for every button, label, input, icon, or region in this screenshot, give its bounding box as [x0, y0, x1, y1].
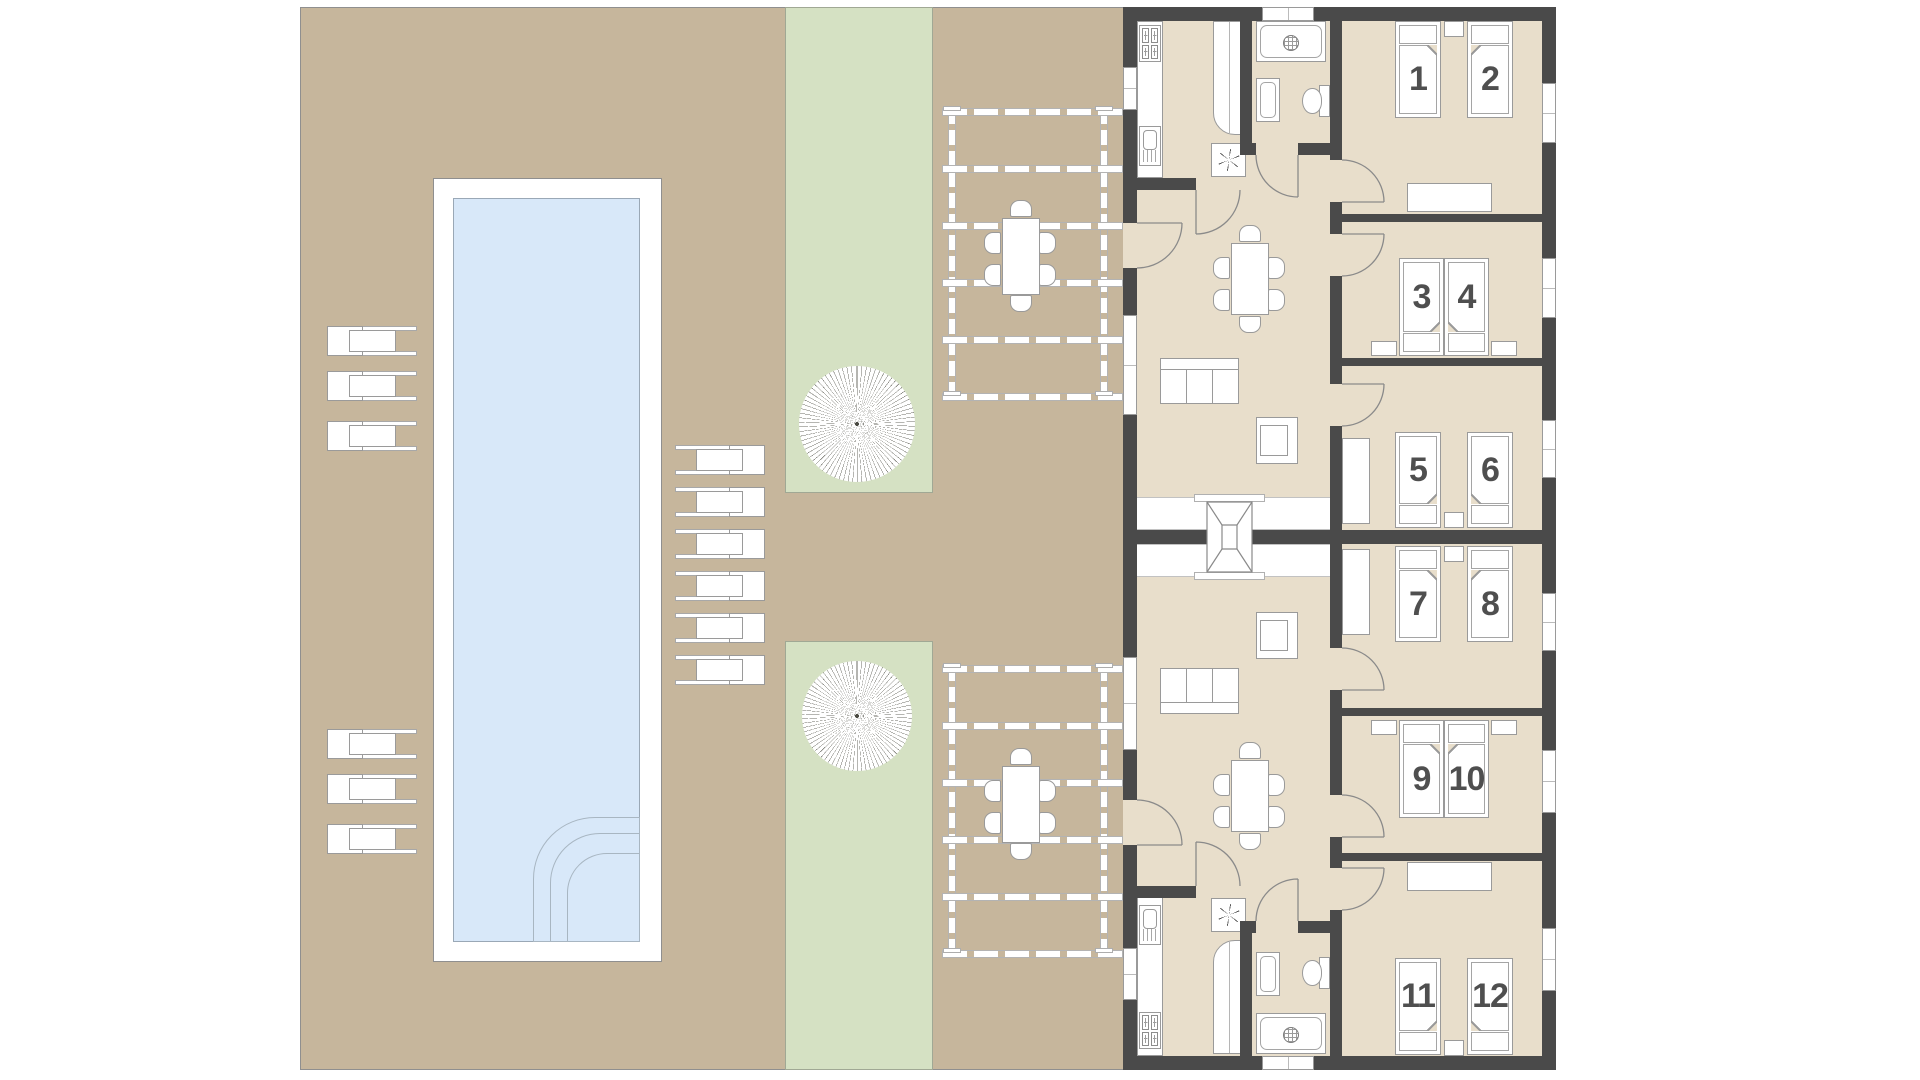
- sink-bowl: [1143, 909, 1157, 929]
- bed: 3: [1399, 258, 1444, 356]
- armchair: [1256, 612, 1298, 659]
- window: [1542, 593, 1556, 651]
- washbasin-inner: [1260, 82, 1276, 118]
- wardrobe: [1407, 183, 1492, 212]
- tree-icon: [799, 366, 915, 482]
- bed-pillow: [1399, 1032, 1437, 1051]
- pergola-cap: [1095, 948, 1113, 953]
- bed-pillow: [1471, 25, 1509, 44]
- outdoor-chair: [984, 232, 1001, 254]
- door-opening: [1123, 800, 1137, 845]
- stove-icon: [1139, 25, 1161, 62]
- outdoor-chair: [1010, 843, 1032, 860]
- window: [1123, 67, 1137, 110]
- armchair: [1256, 417, 1298, 464]
- wall-bedroom-divider: [1342, 708, 1542, 716]
- bed-number: 11: [1401, 977, 1435, 1016]
- bed: 5: [1395, 432, 1441, 528]
- outdoor-chair: [1039, 232, 1056, 254]
- lounger-seat: [696, 659, 743, 681]
- door-opening: [1123, 223, 1137, 268]
- blanket-fold: [1448, 744, 1461, 757]
- sun-lounger: [327, 421, 417, 451]
- outdoor-chair: [1010, 748, 1032, 765]
- lounger-seat: [696, 491, 743, 513]
- drain-icon: [1283, 1027, 1299, 1043]
- kitchen-sink: [1139, 126, 1161, 166]
- bathtub: [1256, 21, 1326, 62]
- sun-lounger: [675, 613, 765, 643]
- door-opening: [1330, 160, 1342, 202]
- washbasin: [1256, 952, 1280, 996]
- washbasin: [1256, 78, 1280, 122]
- bed-blanket: 1: [1399, 45, 1437, 114]
- skylight-flange: [1194, 572, 1265, 580]
- blanket-fold: [1424, 491, 1437, 504]
- wall-bath-living: [1252, 143, 1256, 155]
- sink-drainboard: [1143, 929, 1157, 941]
- wall-bath-living: [1298, 921, 1330, 933]
- blanket-fold: [1427, 744, 1440, 757]
- bed-blanket: 11: [1399, 962, 1437, 1031]
- burner-icon: [1151, 1015, 1158, 1030]
- bed-blanket: 12: [1471, 962, 1509, 1031]
- door-opening: [1330, 384, 1342, 426]
- wardrobe: [1407, 862, 1492, 891]
- dining-chair: [1213, 289, 1230, 311]
- door-opening: [1330, 234, 1342, 276]
- lounger-seat: [696, 449, 743, 471]
- extractor-icon: [1218, 904, 1240, 926]
- bed: 9: [1399, 720, 1444, 818]
- burner-icon: [1151, 28, 1158, 43]
- door-opening: [1330, 868, 1342, 910]
- dining-chair: [1239, 316, 1261, 333]
- armchair-seat: [1260, 620, 1288, 651]
- nightstand: [1444, 546, 1464, 562]
- wardrobe: [1342, 549, 1370, 635]
- pergola-cap: [943, 391, 961, 396]
- blanket-fold: [1471, 45, 1484, 58]
- extractor-icon: [1218, 149, 1240, 171]
- wall-bedroom-divider: [1342, 214, 1542, 222]
- door-opening: [1330, 648, 1342, 690]
- bed-pillow: [1471, 1032, 1509, 1051]
- burner-icon: [1151, 1032, 1158, 1047]
- bed-blanket: 7: [1399, 570, 1437, 638]
- sofa-seats: [1161, 669, 1238, 703]
- pergola-beam: [942, 336, 1123, 344]
- window: [1123, 657, 1137, 750]
- floor-plan-page: 1 2 3 4 5: [0, 0, 1920, 1080]
- sofa-seat: [1212, 369, 1238, 403]
- armchair-seat: [1260, 425, 1288, 456]
- lounger-seat: [349, 330, 396, 352]
- dining-chair: [1268, 289, 1285, 311]
- sink-drainboard: [1143, 150, 1157, 162]
- counter-edge: [1229, 22, 1230, 134]
- nightstand: [1491, 720, 1517, 735]
- bed: 11: [1395, 958, 1441, 1055]
- burner-icon: [1151, 45, 1158, 60]
- lounger-seat: [349, 733, 396, 755]
- nightstand: [1444, 512, 1464, 528]
- nightstand: [1371, 341, 1397, 356]
- pergola-cap: [1095, 106, 1113, 111]
- lounger-seat: [696, 533, 743, 555]
- outdoor-table: [1002, 766, 1040, 843]
- dining-chair: [1268, 774, 1285, 796]
- bed-number: 10: [1449, 760, 1485, 799]
- bed-blanket: 5: [1399, 436, 1437, 504]
- pool-step: [567, 853, 640, 942]
- nightstand: [1371, 720, 1397, 735]
- kitchen-sink: [1139, 905, 1161, 945]
- wall-kitchen-living: [1123, 886, 1196, 898]
- lounger-seat: [349, 375, 396, 397]
- pergola-cap: [1095, 391, 1113, 396]
- door-opening: [1330, 795, 1342, 837]
- lounger-seat: [349, 425, 396, 447]
- dining-chair: [1268, 257, 1285, 279]
- sofa-seat: [1161, 669, 1186, 703]
- blanket-fold: [1427, 319, 1440, 332]
- dining-chair: [1239, 833, 1261, 850]
- blanket-fold: [1471, 491, 1484, 504]
- burner-icon: [1142, 28, 1149, 43]
- bed: 6: [1467, 432, 1513, 528]
- bed: 4: [1444, 258, 1489, 356]
- sun-lounger: [675, 445, 765, 475]
- blanket-fold: [1471, 570, 1484, 583]
- bed-blanket: 10: [1448, 744, 1485, 814]
- wall-bath-living: [1298, 143, 1330, 155]
- wall-bedroom-divider: [1342, 853, 1542, 861]
- window: [1123, 315, 1137, 415]
- sofa-seat: [1186, 669, 1212, 703]
- burner-icon: [1142, 1015, 1149, 1030]
- washbasin-inner: [1260, 956, 1276, 992]
- window: [1123, 948, 1137, 1000]
- bed-blanket: 6: [1471, 436, 1509, 504]
- sun-lounger: [327, 371, 417, 401]
- wall-kitchen-bath: [1240, 921, 1252, 1070]
- skylight-flange: [1194, 494, 1265, 502]
- sun-lounger: [675, 487, 765, 517]
- nightstand: [1444, 21, 1464, 37]
- sink-bowl: [1143, 130, 1157, 150]
- bed-blanket: 8: [1471, 570, 1509, 638]
- sofa-back: [1161, 702, 1238, 713]
- burner-icon: [1142, 1032, 1149, 1047]
- window: [1542, 928, 1556, 991]
- dining-chair: [1268, 806, 1285, 828]
- pergola-beam: [942, 165, 1123, 173]
- sun-lounger: [675, 529, 765, 559]
- bed-blanket: 4: [1448, 262, 1485, 332]
- blanket-fold: [1448, 319, 1461, 332]
- bed-pillow: [1471, 505, 1509, 524]
- sun-lounger: [327, 774, 417, 804]
- bed-pillow: [1448, 333, 1485, 352]
- sun-lounger: [327, 729, 417, 759]
- lounger-seat: [349, 778, 396, 800]
- sun-lounger: [675, 655, 765, 685]
- bed-number: 5: [1409, 451, 1427, 490]
- dining-chair: [1239, 742, 1261, 759]
- bed-number: 1: [1409, 60, 1427, 99]
- lounger-seat: [696, 575, 743, 597]
- dining-chair: [1239, 225, 1261, 242]
- nightstand: [1491, 341, 1517, 356]
- sofa: [1160, 668, 1239, 714]
- dining-chair: [1213, 806, 1230, 828]
- sun-lounger: [327, 824, 417, 854]
- blanket-fold: [1471, 1018, 1484, 1031]
- outdoor-chair: [984, 780, 1001, 802]
- outdoor-chair: [1010, 200, 1032, 217]
- bed-pillow: [1399, 505, 1437, 524]
- outdoor-chair: [1010, 295, 1032, 312]
- pergola-cap: [943, 948, 961, 953]
- sofa-seats: [1161, 369, 1238, 403]
- wall-bedroom-divider: [1342, 358, 1542, 366]
- bed-pillow: [1403, 724, 1440, 743]
- outdoor-chair: [1039, 812, 1056, 834]
- outdoor-chair: [984, 264, 1001, 286]
- bathtub: [1256, 1013, 1326, 1054]
- lounger-seat: [696, 617, 743, 639]
- dining-chair: [1213, 774, 1230, 796]
- bed-number: 6: [1481, 451, 1499, 490]
- dining-chair: [1213, 257, 1230, 279]
- sofa-seat: [1186, 369, 1212, 403]
- stove-icon: [1139, 1012, 1161, 1049]
- window: [1542, 420, 1556, 478]
- blanket-fold: [1424, 45, 1437, 58]
- window: [1542, 750, 1556, 813]
- pergola-post: [948, 665, 956, 958]
- nightstand: [1444, 1040, 1464, 1056]
- window: [1262, 7, 1314, 21]
- toilet-bowl: [1302, 88, 1322, 114]
- pergola-cap: [943, 106, 961, 111]
- pergola-beam: [942, 722, 1123, 730]
- bed-pillow: [1471, 550, 1509, 569]
- dining-table: [1231, 760, 1269, 832]
- sun-lounger: [675, 571, 765, 601]
- sofa: [1160, 358, 1239, 404]
- lounger-seat: [349, 828, 396, 850]
- bed-blanket: 3: [1403, 262, 1440, 332]
- window: [1542, 258, 1556, 318]
- wall-kitchen-bath: [1240, 7, 1252, 155]
- bed-number: 7: [1409, 585, 1427, 624]
- burner-icon: [1142, 45, 1149, 60]
- bed: 2: [1467, 21, 1513, 118]
- bed-number: 9: [1413, 760, 1431, 799]
- bed-pillow: [1399, 550, 1437, 569]
- bed-pillow: [1399, 25, 1437, 44]
- bed-pillow: [1403, 333, 1440, 352]
- blanket-fold: [1424, 1018, 1437, 1031]
- wardrobe: [1342, 438, 1370, 524]
- bed-number: 8: [1481, 585, 1499, 624]
- wall-kitchen-living: [1123, 178, 1196, 190]
- outdoor-chair: [984, 812, 1001, 834]
- sofa-seat: [1161, 369, 1186, 403]
- wall-bath-living: [1252, 921, 1256, 933]
- outdoor-chair: [1039, 780, 1056, 802]
- bed: 1: [1395, 21, 1441, 118]
- bed-number: 2: [1481, 60, 1499, 99]
- bed-blanket: 2: [1471, 45, 1509, 114]
- bed: 7: [1395, 546, 1441, 642]
- pergola-cap: [943, 663, 961, 668]
- pergola-cap: [1095, 663, 1113, 668]
- drain-icon: [1283, 35, 1299, 51]
- tree-icon: [802, 661, 912, 771]
- toilet-bowl: [1302, 960, 1322, 986]
- pergola-post: [948, 108, 956, 401]
- sun-lounger: [327, 326, 417, 356]
- dining-table: [1231, 243, 1269, 315]
- outdoor-chair: [1039, 264, 1056, 286]
- outdoor-table: [1002, 218, 1040, 295]
- counter-edge: [1229, 941, 1230, 1053]
- blanket-fold: [1424, 570, 1437, 583]
- bed: 10: [1444, 720, 1489, 818]
- bed-number: 3: [1413, 278, 1431, 317]
- bed: 12: [1467, 958, 1513, 1055]
- window: [1262, 1056, 1314, 1070]
- bed: 8: [1467, 546, 1513, 642]
- window: [1542, 83, 1556, 143]
- bed-number: 12: [1472, 977, 1508, 1016]
- bed-pillow: [1448, 724, 1485, 743]
- pergola-post: [1100, 665, 1108, 958]
- pergola-beam: [942, 893, 1123, 901]
- bed-blanket: 9: [1403, 744, 1440, 814]
- pergola-post: [1100, 108, 1108, 401]
- sofa-seat: [1212, 669, 1238, 703]
- bed-number: 4: [1458, 278, 1476, 317]
